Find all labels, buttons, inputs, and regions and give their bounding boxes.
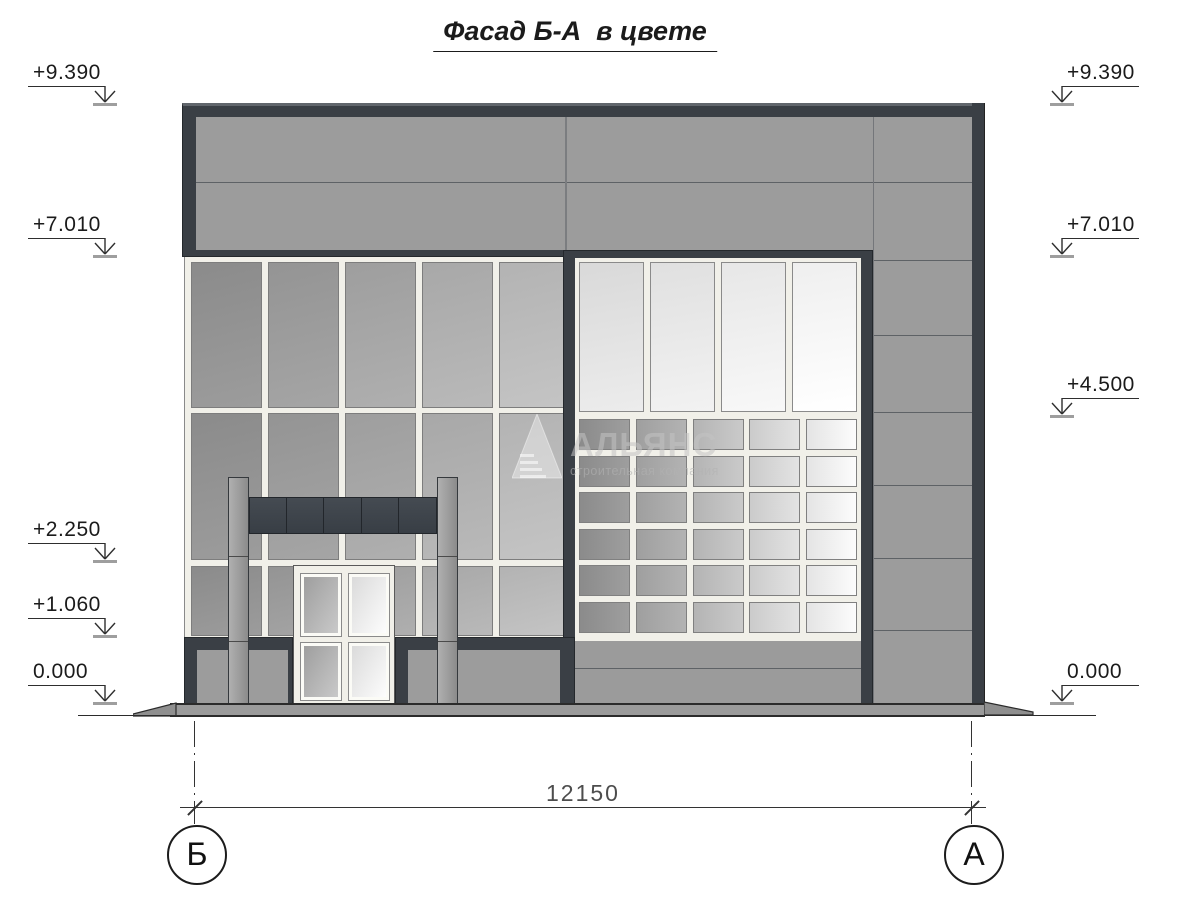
elevation-arrow-icon [1049,398,1075,419]
elevation-arrow-icon [92,685,118,706]
glass-panel-small [806,456,857,487]
canopy-beam-segment [362,498,399,533]
glass-panel-small [749,529,800,560]
glass-panel-small [693,419,744,450]
facade-drawing-sheet: Фасад Б-А в цвете +9.390 +7.010 +2.250 +… [0,0,1200,900]
panel-joint [575,668,861,669]
curtain-panel [345,413,416,560]
door-glass-panel [348,573,390,637]
glass-panel-small [749,602,800,633]
elevation-arrow-icon [1049,238,1075,259]
elevation-arrow-icon [1049,86,1075,107]
glazed-block-spandrel [575,641,861,703]
glass-panel-small [636,565,687,596]
right-pilaster-column [873,117,972,706]
parapet-panels [196,117,972,250]
curtain-panel [499,262,570,408]
elevation-arrow-icon [92,86,118,107]
panel-joint [874,182,972,183]
glass-panel-small [693,492,744,523]
glass-panel-small [806,492,857,523]
elevation-mark-left-1060: +1.060 [28,593,105,619]
elevation-mark-right-7010: +7.010 [1062,213,1139,239]
panel-joint [565,117,567,250]
elevation-label: +2.250 [28,518,105,543]
glass-panel-tall [792,262,857,412]
base-panel [408,650,560,706]
canopy-beam-segment [287,498,324,533]
panel-joint [874,485,972,486]
glass-panel-small [806,529,857,560]
glass-panel-small [693,456,744,487]
elevation-arrow-icon [1049,685,1075,706]
glass-panel-small [636,529,687,560]
left-ramp [133,701,177,722]
glass-panel-small [579,456,630,487]
glass-panel-small [579,419,630,450]
glass-panel-small [579,565,630,596]
glass-panel-small [579,529,630,560]
panel-joint [874,558,972,559]
glass-panel-small [749,492,800,523]
elevation-mark-right-9390: +9.390 [1062,61,1139,87]
axis-marker-b: Б [167,825,227,885]
glass-panel-small [749,565,800,596]
curtain-panel [191,566,262,636]
right-edge-fin [972,103,985,706]
elevation-mark-left-9390: +9.390 [28,61,105,87]
glass-panel-small [579,602,630,633]
glass-panel-tall [579,262,644,412]
curtain-panel [499,413,570,560]
canopy-beam [249,497,437,534]
canopy-beam-segment [250,498,287,533]
elevation-label: +9.390 [28,61,105,86]
elevation-label: +7.010 [28,213,105,238]
entrance-pylon-left [228,477,249,706]
curtain-panel [268,262,339,408]
ground-line [78,715,1096,716]
curtain-panel [499,566,570,636]
entrance-pylon-right [437,477,458,706]
glass-panel-tall [721,262,786,412]
elevation-mark-right-4500: +4.500 [1062,373,1139,399]
curtain-panel [191,413,262,560]
glass-panel-small [749,419,800,450]
entrance-door [293,565,395,706]
canopy-beam-segment [324,498,361,533]
elevation-arrow-icon [92,543,118,564]
door-glass-panel [348,642,390,701]
glass-panel-small [636,602,687,633]
glass-panel-small [806,602,857,633]
elevation-label: 0.000 [28,660,105,685]
panel-joint [229,641,248,642]
elevation-label: +9.390 [1062,61,1139,86]
glass-panel-tall [650,262,715,412]
curtain-panel [191,262,262,408]
door-glass-panel [300,642,342,701]
panel-joint [874,335,972,336]
panel-joint [196,182,972,183]
elevation-arrow-icon [92,238,118,259]
dimension-value: 12150 [503,780,663,807]
glass-panel-small [579,492,630,523]
drawing-title: Фасад Б-А в цвете [433,16,717,52]
glass-panel-small [636,456,687,487]
elevation-mark-right-0000: 0.000 [1062,660,1139,686]
panel-joint [874,260,972,261]
curtain-panel [268,413,339,560]
elevation-mark-left-0000: 0.000 [28,660,105,686]
elevation-arrow-icon [92,618,118,639]
elevation-label: +4.500 [1062,373,1139,398]
curtain-panel [345,262,416,408]
elevation-label: +7.010 [1062,213,1139,238]
curtain-panel [422,262,493,408]
right-ramp [984,701,1034,722]
panel-joint [438,641,457,642]
glass-panel-small [636,492,687,523]
glass-panel-small [749,456,800,487]
elevation-mark-left-7010: +7.010 [28,213,105,239]
glass-panel-small [806,419,857,450]
door-glass-panel [300,573,342,637]
panel-joint [874,630,972,631]
panel-joint [229,556,248,557]
glazed-block-field [575,258,861,641]
canopy-beam-segment [399,498,436,533]
elevation-label: 0.000 [1062,660,1139,685]
panel-joint [874,412,972,413]
dimension-line [180,807,986,808]
glass-panel-small [693,602,744,633]
panel-joint [438,556,457,557]
glass-panel-small [693,529,744,560]
glass-panel-small [693,565,744,596]
glass-panel-small [636,419,687,450]
axis-marker-a: А [944,825,1004,885]
glass-panel-small [806,565,857,596]
elevation-label: +1.060 [28,593,105,618]
elevation-mark-left-2250: +2.250 [28,518,105,544]
